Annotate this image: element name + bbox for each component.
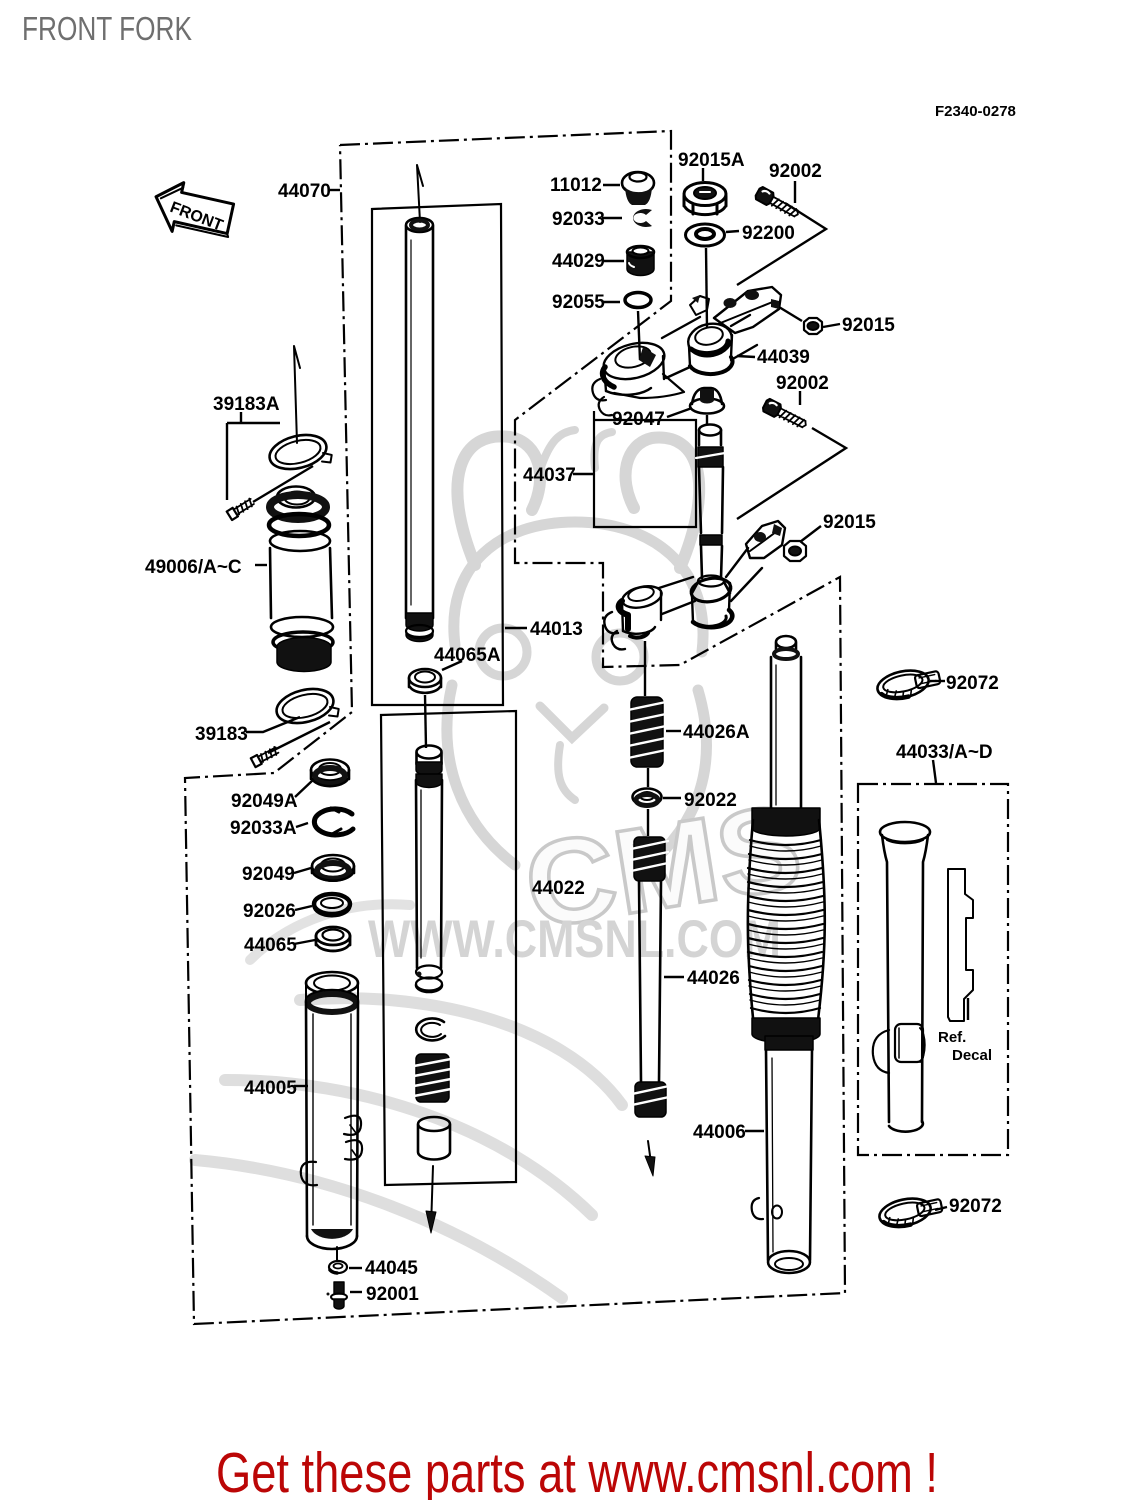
svg-text:92033A: 92033A: [230, 818, 297, 839]
svg-text:Ref.: Ref.: [938, 1029, 966, 1046]
svg-text:39183A: 39183A: [213, 394, 280, 415]
svg-text:92049A: 92049A: [231, 791, 298, 812]
svg-text:92022: 92022: [684, 790, 737, 811]
svg-text:44026A: 44026A: [683, 722, 750, 743]
svg-text:44065A: 44065A: [434, 645, 501, 666]
svg-text:92015A: 92015A: [678, 150, 745, 171]
svg-text:92072: 92072: [946, 673, 999, 694]
svg-text:FRONT FORK: FRONT FORK: [22, 10, 192, 47]
svg-text:44006: 44006: [693, 1122, 746, 1143]
svg-text:44070: 44070: [278, 181, 331, 202]
svg-text:Get these parts at www.cmsnl.c: Get these parts at www.cmsnl.com !: [216, 1441, 938, 1500]
svg-text:WWW.CMSNL.COM: WWW.CMSNL.COM: [368, 910, 781, 969]
svg-text:11012: 11012: [550, 175, 602, 196]
svg-text:39183: 39183: [195, 724, 248, 745]
svg-text:92002: 92002: [776, 373, 829, 394]
svg-text:92047: 92047: [612, 409, 665, 430]
svg-text:44022: 44022: [532, 878, 585, 899]
svg-text:44005: 44005: [244, 1078, 297, 1099]
svg-text:F2340-0278: F2340-0278: [935, 103, 1016, 120]
svg-text:92015: 92015: [842, 315, 895, 336]
svg-text:92055: 92055: [552, 292, 605, 313]
svg-text:44033/A~D: 44033/A~D: [896, 742, 993, 763]
svg-text:92026: 92026: [243, 901, 296, 922]
svg-text:92002: 92002: [769, 161, 822, 182]
svg-text:44013: 44013: [530, 619, 583, 640]
svg-text:92049: 92049: [242, 864, 295, 885]
svg-text:Decal: Decal: [952, 1047, 992, 1064]
svg-text:92072: 92072: [949, 1196, 1002, 1217]
svg-text:44026: 44026: [687, 968, 740, 989]
svg-text:44029: 44029: [552, 251, 605, 272]
svg-text:92200: 92200: [742, 223, 795, 244]
svg-text:92033: 92033: [552, 209, 605, 230]
svg-text:44045: 44045: [365, 1258, 418, 1279]
svg-text:49006/A~C: 49006/A~C: [145, 557, 242, 578]
svg-text:92001: 92001: [366, 1284, 419, 1305]
svg-text:44065: 44065: [244, 935, 297, 956]
svg-text:44037: 44037: [523, 465, 576, 486]
svg-text:44039: 44039: [757, 347, 810, 368]
svg-text:92015: 92015: [823, 512, 876, 533]
